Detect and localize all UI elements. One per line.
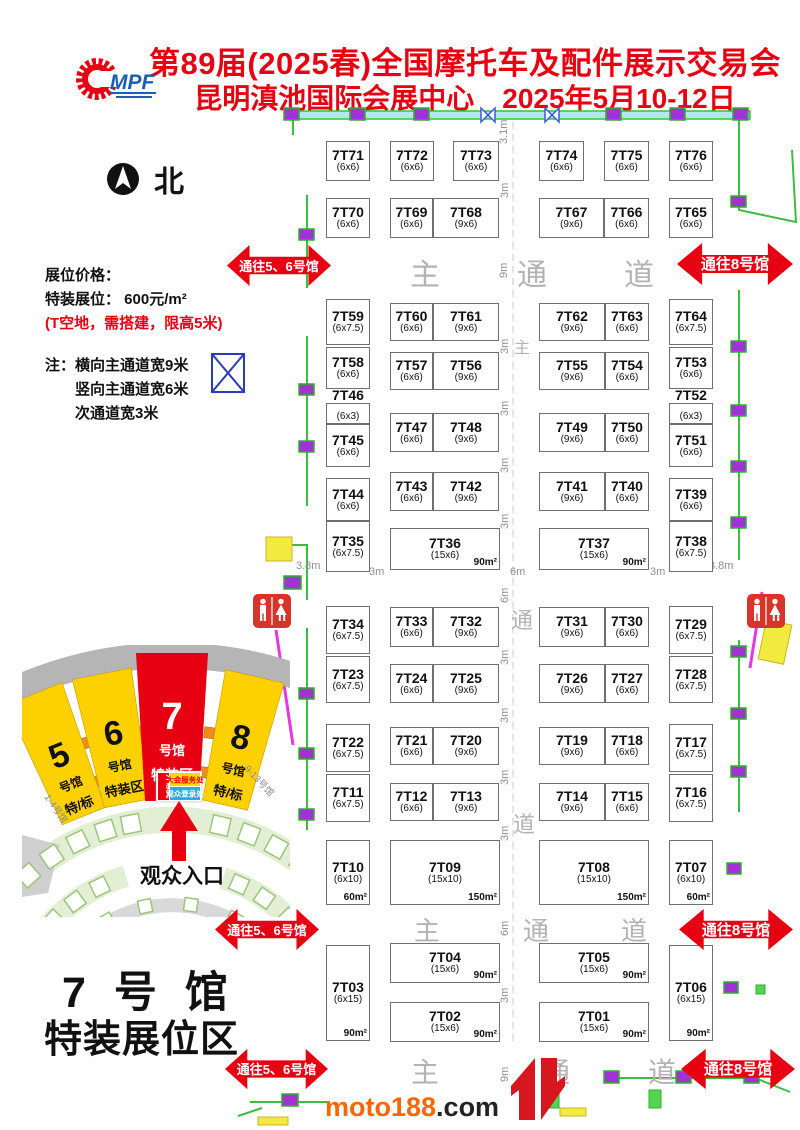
- booth-size: (6x6): [616, 629, 639, 640]
- booth-id: 7T39: [675, 487, 707, 502]
- cmpf-logo: MPF: [70, 48, 190, 106]
- booth-id: 7T31: [556, 614, 588, 629]
- booth-size: (6x6): [337, 502, 360, 513]
- booth-7T73[interactable]: 7T73(6x6): [453, 141, 499, 181]
- booth-id: 7T33: [396, 614, 428, 629]
- dimension-label: 3m: [499, 183, 511, 198]
- booth-area: 150m²: [617, 893, 646, 904]
- booth-7T48[interactable]: 7T48(9x6): [433, 413, 499, 452]
- watermark-orange: moto188: [325, 1092, 436, 1122]
- booth-id: 7T55: [556, 358, 588, 373]
- booth-size: (9x6): [455, 435, 478, 446]
- booth-7T29[interactable]: 7T29(6x7.5): [669, 606, 713, 654]
- booth-id: 7T21: [396, 733, 428, 748]
- booth-id: 7T46: [327, 388, 369, 403]
- booth-id: 7T47: [396, 420, 428, 435]
- booth-size: (6x7.5): [332, 324, 363, 335]
- booth-id: 7T22: [332, 735, 364, 750]
- booth-size: (15x6): [580, 965, 608, 976]
- booth-size: (15x6): [580, 551, 608, 562]
- booth-7T69[interactable]: 7T69(6x6): [390, 198, 433, 238]
- booth-7T52[interactable]: 7T52(6x3): [669, 403, 713, 424]
- nav-arrow-label: 通往5、6号馆: [227, 256, 331, 275]
- booth-7T14[interactable]: 7T14(9x6): [539, 783, 605, 821]
- booth-size: (6x6): [401, 163, 424, 174]
- booth-7T12[interactable]: 7T12(6x6): [390, 783, 433, 821]
- booth-7T46[interactable]: 7T46(6x3): [326, 403, 370, 424]
- booth-size: (6x6): [400, 220, 423, 231]
- booth-7T27[interactable]: 7T27(6x6): [605, 664, 649, 703]
- booth-size: (6x7.5): [675, 549, 706, 560]
- booth-id: 7T34: [332, 617, 364, 632]
- booth-size: (6x6): [615, 220, 638, 231]
- booth-id: 7T18: [611, 733, 643, 748]
- nav-arrow: 通往8号馆: [681, 1047, 795, 1091]
- corridor-label: 通: [517, 250, 547, 294]
- booth-7T08[interactable]: 7T08(15x10)150m²: [539, 840, 649, 905]
- nav-arrow-label: 通往8号馆: [679, 919, 793, 940]
- booth-id: 7T43: [396, 479, 428, 494]
- booth-size: (6x6): [400, 748, 423, 759]
- booth-size: (15x10): [577, 875, 611, 886]
- booth-id: 7T13: [450, 789, 482, 804]
- booth-size: (9x6): [561, 494, 584, 505]
- booth-id: 7T24: [396, 671, 428, 686]
- booth-id: 7T76: [675, 148, 707, 163]
- booth-id: 7T27: [611, 671, 643, 686]
- booth-id: 7T42: [450, 479, 482, 494]
- booth-size: (6x6): [465, 163, 488, 174]
- dimension-label: 6m: [510, 566, 525, 578]
- nav-arrow: 通往5、6号馆: [225, 1047, 328, 1091]
- booth-size: (9x6): [561, 435, 584, 446]
- entrance-arrow-icon: [509, 1056, 567, 1122]
- restroom-icon-left: [252, 594, 292, 628]
- booth-size: (15x6): [580, 1024, 608, 1035]
- nav-arrow-label: 通往8号馆: [681, 1058, 795, 1079]
- booth-size: (9x6): [561, 324, 584, 335]
- booth-id: 7T19: [556, 733, 588, 748]
- booth-7T75[interactable]: 7T75(6x6): [604, 141, 649, 181]
- booth-7T39[interactable]: 7T39(6x6): [669, 478, 713, 521]
- booth-7T72[interactable]: 7T72(6x6): [390, 141, 434, 181]
- booth-size: (6x6): [400, 494, 423, 505]
- booth-id: 7T16: [675, 785, 707, 800]
- booth-7T68[interactable]: 7T68(9x6): [433, 198, 499, 238]
- booth-id: 7T36: [429, 536, 461, 551]
- booth-id: 7T66: [611, 205, 643, 220]
- booth-7T41[interactable]: 7T41(9x6): [539, 472, 605, 511]
- booth-id: 7T08: [578, 860, 610, 875]
- dimension-label: 3m: [499, 514, 511, 529]
- booth-id: 7T17: [675, 735, 707, 750]
- booth-size: (6x6): [337, 448, 360, 459]
- booth-size: (6x7.5): [332, 549, 363, 560]
- nav-arrow-label: 通往5、6号馆: [225, 1059, 328, 1078]
- booth-7T62[interactable]: 7T62(9x6): [539, 303, 605, 341]
- booth-size: (9x6): [455, 629, 478, 640]
- dimension-label: 3m: [650, 566, 665, 578]
- booth-size: (9x6): [561, 804, 584, 815]
- booth-size: (6x6): [400, 373, 423, 384]
- booth-id: 7T35: [332, 534, 364, 549]
- booth-size: (6x6): [680, 163, 703, 174]
- booth-7T67[interactable]: 7T67(9x6): [539, 198, 604, 238]
- booth-size: (9x6): [561, 629, 584, 640]
- booth-size: (6x7.5): [332, 750, 363, 761]
- booth-7T05[interactable]: 7T05(15x6)90m²: [539, 943, 649, 983]
- booth-size: (6x7.5): [332, 632, 363, 643]
- corridor-label: 主: [411, 1051, 439, 1091]
- booth-7T23[interactable]: 7T23(6x7.5): [326, 656, 370, 703]
- nav-arrow: 通往5、6号馆: [227, 243, 331, 288]
- corridor-label: 主: [410, 250, 440, 294]
- booth-size: (9x6): [455, 804, 478, 815]
- booth-7T37[interactable]: 7T37(15x6)90m²: [539, 528, 649, 570]
- booth-size: (6x7.5): [675, 632, 706, 643]
- booth-area: 90m²: [623, 1030, 646, 1041]
- booth-size: (9x6): [455, 748, 478, 759]
- restroom-icon-right: [747, 592, 785, 630]
- booth-size: (6x15): [677, 995, 705, 1006]
- booth-area: 90m²: [623, 558, 646, 569]
- booth-7T50[interactable]: 7T50(6x6): [605, 413, 649, 452]
- corridor-label: 通: [511, 603, 533, 635]
- booth-7T10[interactable]: 7T10(6x10)60m²: [326, 840, 370, 905]
- booth-size: (6x6): [400, 686, 423, 697]
- booth-size: (9x6): [455, 220, 478, 231]
- booth-7T22[interactable]: 7T22(6x7.5): [326, 724, 370, 772]
- dimension-label: 3.1m: [498, 120, 510, 144]
- booth-size: (6x6): [680, 220, 703, 231]
- booth-7T56[interactable]: 7T56(9x6): [433, 352, 499, 390]
- booth-7T51[interactable]: 7T51(6x6): [669, 424, 713, 467]
- booth-size: (9x6): [455, 373, 478, 384]
- booth-size: (6x6): [400, 629, 423, 640]
- booth-7T45[interactable]: 7T45(6x6): [326, 424, 370, 467]
- logo-text: MPF: [110, 71, 156, 94]
- booth-id: 7T23: [332, 667, 364, 682]
- booth-7T53[interactable]: 7T53(6x6): [669, 347, 713, 389]
- booth-id: 7T56: [450, 358, 482, 373]
- booth-7T65[interactable]: 7T65(6x6): [669, 198, 713, 238]
- booth-7T13[interactable]: 7T13(9x6): [433, 783, 499, 821]
- booth-7T33[interactable]: 7T33(6x6): [390, 607, 433, 647]
- booth-7T11[interactable]: 7T11(6x7.5): [326, 774, 370, 822]
- booth-size: (9x6): [455, 494, 478, 505]
- booth-area: 60m²: [344, 893, 367, 904]
- booth-7T02[interactable]: 7T02(15x6)90m²: [390, 1002, 500, 1042]
- booth-id: 7T74: [546, 148, 578, 163]
- booth-7T15[interactable]: 7T15(6x6): [605, 783, 649, 821]
- booth-7T43[interactable]: 7T43(6x6): [390, 472, 433, 511]
- nav-arrow: 通往8号馆: [677, 241, 793, 287]
- booth-id: 7T25: [450, 671, 482, 686]
- booth-id: 7T07: [675, 860, 707, 875]
- booth-7T57[interactable]: 7T57(6x6): [390, 352, 433, 390]
- booth-size: (9x6): [561, 373, 584, 384]
- booth-7T26[interactable]: 7T26(9x6): [539, 664, 605, 703]
- booth-id: 7T49: [556, 420, 588, 435]
- booth-size: (9x6): [560, 220, 583, 231]
- booth-size: (6x6): [400, 435, 423, 446]
- booth-7T24[interactable]: 7T24(6x6): [390, 664, 433, 703]
- booth-id: 7T05: [578, 950, 610, 965]
- corridor-label: 主: [514, 334, 530, 358]
- booth-id: 7T04: [429, 950, 461, 965]
- booth-area: 90m²: [474, 1030, 497, 1041]
- booth-size: (6x15): [334, 995, 362, 1006]
- dimension-label: 3m: [369, 566, 384, 578]
- booth-id: 7T37: [578, 536, 610, 551]
- booth-id: 7T65: [675, 205, 707, 220]
- booth-size: (6x6): [550, 163, 573, 174]
- booth-size: (6x6): [337, 163, 360, 174]
- booth-size: (6x6): [616, 494, 639, 505]
- booth-id: 7T14: [556, 789, 588, 804]
- booth-7T40[interactable]: 7T40(6x6): [605, 472, 649, 511]
- booth-size: (6x6): [680, 448, 703, 459]
- booth-7T66[interactable]: 7T66(6x6): [604, 198, 649, 238]
- booth-size: (6x7.5): [675, 800, 706, 811]
- booth-size: (6x10): [677, 875, 705, 886]
- booth-id: 7T70: [332, 205, 364, 220]
- booth-area: 60m²: [687, 893, 710, 904]
- watermark-dark: .com: [436, 1092, 499, 1122]
- booth-id: 7T45: [332, 433, 364, 448]
- booth-size: (6x6): [616, 373, 639, 384]
- booth-id: 7T06: [675, 980, 707, 995]
- booth-7T07[interactable]: 7T07(6x10)60m²: [669, 840, 713, 905]
- watermark-link[interactable]: moto188.com: [325, 1092, 499, 1123]
- booth-id: 7T60: [396, 309, 428, 324]
- dimension-label: 3m: [499, 708, 511, 723]
- booth-size: (6x6): [615, 163, 638, 174]
- nav-arrow-label: 通往8号馆: [677, 253, 793, 274]
- booth-7T70[interactable]: 7T70(6x6): [326, 198, 370, 238]
- booth-size: (6x6): [616, 324, 639, 335]
- booth-7T20[interactable]: 7T20(9x6): [433, 727, 499, 765]
- booth-id: 7T67: [556, 205, 588, 220]
- booth-area: 150m²: [468, 893, 497, 904]
- booth-id: 7T53: [675, 355, 707, 370]
- nav-arrow: 通往8号馆: [679, 907, 793, 952]
- booth-size: (9x6): [455, 324, 478, 335]
- booth-size: (9x6): [561, 686, 584, 697]
- booth-7T28[interactable]: 7T28(6x7.5): [669, 656, 713, 703]
- booth-id: 7T72: [396, 148, 428, 163]
- booth-size: (6x7.5): [332, 800, 363, 811]
- booth-size: (6x6): [337, 220, 360, 231]
- corridor-label: 道: [513, 807, 535, 839]
- dimension-label: 6m: [499, 921, 511, 936]
- dimension-label: 3m: [499, 826, 511, 841]
- booth-7T16[interactable]: 7T16(6x7.5): [669, 774, 713, 822]
- booth-id: 7T44: [332, 487, 364, 502]
- booth-id: 7T40: [611, 479, 643, 494]
- booth-7T55[interactable]: 7T55(9x6): [539, 352, 605, 390]
- svg-text:号馆: 号馆: [159, 743, 185, 758]
- booth-7T47[interactable]: 7T47(6x6): [390, 413, 433, 452]
- booth-id: 7T61: [450, 309, 482, 324]
- booth-7T32[interactable]: 7T32(9x6): [433, 607, 499, 647]
- hall-overview-inset: 5 号馆 特/标 6 号馆 特装区 8 号馆 特/标 7 号馆 特装区 开幕式: [22, 645, 290, 917]
- booth-id: 7T30: [611, 614, 643, 629]
- booth-id: 7T02: [429, 1009, 461, 1024]
- booth-7T09[interactable]: 7T09(15x10)150m²: [390, 840, 500, 905]
- dimension-label: 3m: [499, 770, 511, 785]
- booth-7T35[interactable]: 7T35(6x7.5): [326, 521, 370, 572]
- booth-size: (15x6): [431, 965, 459, 976]
- booth-7T19[interactable]: 7T19(9x6): [539, 727, 605, 765]
- booth-id: 7T28: [675, 667, 707, 682]
- booth-size: (6x6): [400, 324, 423, 335]
- booth-size: (6x10): [334, 875, 362, 886]
- booth-id: 7T54: [611, 358, 643, 373]
- booth-id: 7T26: [556, 671, 588, 686]
- booth-id: 7T48: [450, 420, 482, 435]
- booth-size: (6x6): [616, 804, 639, 815]
- booth-7T76[interactable]: 7T76(6x6): [669, 141, 713, 181]
- booth-size: (6x6): [680, 370, 703, 381]
- booth-size: (15x6): [431, 551, 459, 562]
- booth-id: 7T10: [332, 860, 364, 875]
- booth-id: 7T38: [675, 534, 707, 549]
- nav-arrow: 通往5、6号馆: [215, 907, 319, 952]
- visitor-entrance-label: 观众入口: [140, 865, 224, 888]
- booth-size: (15x10): [428, 875, 462, 886]
- booth-id: 7T41: [556, 479, 588, 494]
- booth-7T60[interactable]: 7T60(6x6): [390, 303, 433, 341]
- booth-id: 7T15: [611, 789, 643, 804]
- booth-7T49[interactable]: 7T49(9x6): [539, 413, 605, 452]
- booth-7T38[interactable]: 7T38(6x7.5): [669, 521, 713, 572]
- booth-size: (15x6): [431, 1024, 459, 1035]
- booth-id: 7T09: [429, 860, 461, 875]
- booth-7T21[interactable]: 7T21(6x6): [390, 727, 433, 765]
- booth-id: 7T75: [611, 148, 643, 163]
- badge-service: 大会服务处: [166, 775, 204, 785]
- booth-7T31[interactable]: 7T31(9x6): [539, 607, 605, 647]
- booth-7T17[interactable]: 7T17(6x7.5): [669, 724, 713, 772]
- booth-id: 7T58: [332, 355, 364, 370]
- booth-id: 7T59: [332, 309, 364, 324]
- booth-id: 7T71: [332, 148, 364, 163]
- corridor-label: 道: [624, 250, 654, 294]
- booth-id: 7T20: [450, 733, 482, 748]
- booth-7T71[interactable]: 7T71(6x6): [326, 141, 370, 181]
- booth-7T64[interactable]: 7T64(6x7.5): [669, 299, 713, 345]
- booth-id: 7T69: [396, 205, 428, 220]
- booth-7T44[interactable]: 7T44(6x6): [326, 478, 370, 521]
- booth-size: (6x3): [680, 412, 703, 423]
- dimension-label: 3m: [499, 988, 511, 1003]
- booth-area: 90m²: [474, 971, 497, 982]
- booth-id: 7T64: [675, 309, 707, 324]
- booth-id: 7T12: [396, 789, 428, 804]
- dimension-label: 6m: [499, 588, 511, 603]
- booth-size: (6x6): [616, 686, 639, 697]
- booth-size: (6x6): [616, 748, 639, 759]
- floorplan-page: MPF 第89届(2025春)全国摩托车及配件展示交易会 昆明滇池国际会展中心 …: [0, 0, 800, 1130]
- booth-size: (9x6): [455, 686, 478, 697]
- booth-id: 7T50: [611, 420, 643, 435]
- booth-size: (6x7.5): [675, 682, 706, 693]
- booth-7T58[interactable]: 7T58(6x6): [326, 347, 370, 389]
- booth-7T04[interactable]: 7T04(15x6)90m²: [390, 943, 500, 983]
- badge-registration: 观众登录处: [166, 789, 204, 799]
- booth-7T36[interactable]: 7T36(15x6)90m²: [390, 528, 500, 570]
- booth-7T18[interactable]: 7T18(6x6): [605, 727, 649, 765]
- dimension-label: 9m: [498, 263, 510, 278]
- booth-id: 7T68: [450, 205, 482, 220]
- corridor-label: 道: [648, 1051, 676, 1091]
- booth-size: (6x3): [337, 412, 360, 423]
- booth-size: (6x6): [616, 435, 639, 446]
- booth-7T03[interactable]: 7T03(6x15)90m²: [326, 945, 370, 1041]
- booth-size: (6x7.5): [675, 750, 706, 761]
- booth-area: 90m²: [474, 558, 497, 569]
- dimension-label: 3m: [499, 401, 511, 416]
- booth-area: 90m²: [623, 971, 646, 982]
- booth-id: 7T73: [460, 148, 492, 163]
- dimension-label: 3.8m: [296, 560, 320, 572]
- booth-id: 7T62: [556, 309, 588, 324]
- booth-7T06[interactable]: 7T06(6x15)90m²: [669, 945, 713, 1041]
- booth-7T34[interactable]: 7T34(6x7.5): [326, 606, 370, 654]
- booth-size: (6x6): [680, 502, 703, 513]
- nav-arrow-label: 通往5、6号馆: [215, 920, 319, 939]
- dimension-label: 3m: [499, 650, 511, 665]
- booth-7T42[interactable]: 7T42(9x6): [433, 472, 499, 511]
- booth-7T74[interactable]: 7T74(6x6): [539, 141, 584, 181]
- dimension-label: 3m: [499, 458, 511, 473]
- booth-7T01[interactable]: 7T01(15x6)90m²: [539, 1002, 649, 1042]
- booth-id: 7T29: [675, 617, 707, 632]
- booth-id: 7T11: [332, 785, 363, 800]
- svg-text:7: 7: [161, 696, 182, 738]
- booth-size: (9x6): [561, 748, 584, 759]
- dimension-label: 3m: [499, 339, 511, 354]
- booth-7T30[interactable]: 7T30(6x6): [605, 607, 649, 647]
- booth-7T59[interactable]: 7T59(6x7.5): [326, 299, 370, 345]
- booth-area: 90m²: [344, 1029, 367, 1040]
- booth-7T25[interactable]: 7T25(9x6): [433, 664, 499, 703]
- booth-size: (6x7.5): [675, 324, 706, 335]
- booth-area: 90m²: [687, 1029, 710, 1040]
- booth-id: 7T03: [332, 980, 364, 995]
- booth-7T63[interactable]: 7T63(6x6): [605, 303, 649, 341]
- booth-id: 7T51: [675, 433, 707, 448]
- booth-size: (6x6): [337, 370, 360, 381]
- booth-7T61[interactable]: 7T61(9x6): [433, 303, 499, 341]
- booth-id: 7T63: [611, 309, 643, 324]
- booth-id: 7T32: [450, 614, 482, 629]
- booth-id: 7T52: [670, 388, 712, 403]
- booth-size: (6x7.5): [332, 682, 363, 693]
- booth-size: (6x6): [400, 804, 423, 815]
- booth-id: 7T57: [396, 358, 428, 373]
- booth-7T54[interactable]: 7T54(6x6): [605, 352, 649, 390]
- booth-id: 7T01: [578, 1009, 610, 1024]
